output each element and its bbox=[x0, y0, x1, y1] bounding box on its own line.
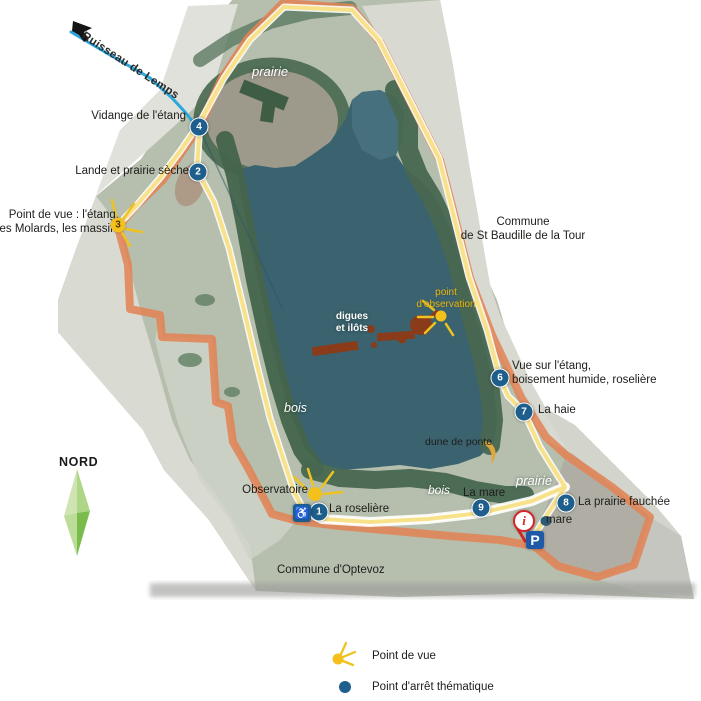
info-icon[interactable]: i bbox=[513, 510, 535, 532]
observation-point-line1: point bbox=[404, 287, 488, 299]
legend-viewpoint-label: Point de vue bbox=[372, 650, 436, 662]
habitat-label-bois-south: bois bbox=[428, 483, 450, 497]
legend-sun-icon bbox=[330, 640, 358, 668]
habitat-label-prairie-top: prairie bbox=[252, 64, 288, 79]
observatoire-label: Observatoire bbox=[242, 484, 308, 498]
digues-label: digues et ilôts bbox=[324, 311, 380, 335]
viewpoint3-label-line2: les Molards, les massifs bbox=[0, 223, 119, 237]
stop-label-vue-line1: Vue sur l'étang, bbox=[512, 360, 656, 374]
stop-label-vidange: Vidange de l'étang bbox=[91, 110, 186, 124]
stop-label-haie: La haie bbox=[538, 404, 576, 418]
north-label: NORD bbox=[59, 455, 98, 469]
commune-right-line2: de St Baudille de la Tour bbox=[423, 230, 623, 244]
stop-label-vue: Vue sur l'étang, boisement humide, rosel… bbox=[512, 360, 656, 387]
bottom-shadow bbox=[150, 583, 695, 597]
stop-marker-6[interactable]: 6 bbox=[491, 369, 510, 388]
stop-label-lande: Lande et prairie sèche bbox=[75, 165, 189, 179]
wheelchair-icon[interactable]: ♿ bbox=[293, 504, 311, 522]
commune-right-line1: Commune bbox=[423, 216, 623, 230]
stop-label-roseliere: La roselière bbox=[329, 503, 389, 517]
viewpoint3-label: Point de vue : l'étang, les Molards, les… bbox=[0, 209, 119, 236]
small-mare-label: mare bbox=[546, 514, 572, 528]
digues-line1: digues bbox=[324, 311, 380, 323]
viewpoint-marker-3[interactable]: 3 bbox=[111, 218, 126, 233]
stop-marker-4[interactable]: 4 bbox=[190, 118, 209, 137]
legend-stop-label: Point d'arrêt thématique bbox=[372, 681, 494, 693]
habitat-label-bois-west: bois bbox=[284, 401, 307, 415]
stop-marker-2[interactable]: 2 bbox=[189, 163, 208, 182]
woods-blob bbox=[195, 294, 215, 306]
commune-bottom-label: Commune d'Optevoz bbox=[277, 564, 385, 578]
digues-line2: et ilôts bbox=[324, 323, 380, 335]
commune-right-label: Commune de St Baudille de la Tour bbox=[423, 216, 623, 243]
legend-dot-icon bbox=[339, 681, 351, 693]
north-arrow-icon bbox=[64, 469, 90, 556]
dune-label: dune de ponte bbox=[425, 436, 492, 450]
woods-blob bbox=[224, 387, 240, 397]
woods-blob bbox=[178, 353, 202, 367]
stop-marker-8[interactable]: 8 bbox=[557, 494, 576, 513]
viewpoint3-label-line1: Point de vue : l'étang, bbox=[0, 209, 119, 223]
habitat-label-prairie-se: prairie bbox=[516, 473, 552, 488]
observation-point-label: point d'observation bbox=[404, 287, 488, 310]
stop-marker-1[interactable]: 1 bbox=[310, 503, 329, 522]
stop-label-prairie-fauchee: La prairie fauchée bbox=[578, 496, 670, 510]
stop-label-vue-line2: boisement humide, roselière bbox=[512, 374, 656, 388]
stop-marker-7[interactable]: 7 bbox=[515, 403, 534, 422]
stop-marker-9[interactable]: 9 bbox=[472, 499, 491, 518]
map-canvas bbox=[0, 0, 701, 701]
parking-icon[interactable]: P bbox=[526, 531, 544, 549]
trail-map: Ruisseau de Lemps prairie Vidange de l'é… bbox=[0, 0, 701, 701]
observation-point-line2: d'observation bbox=[404, 299, 488, 311]
